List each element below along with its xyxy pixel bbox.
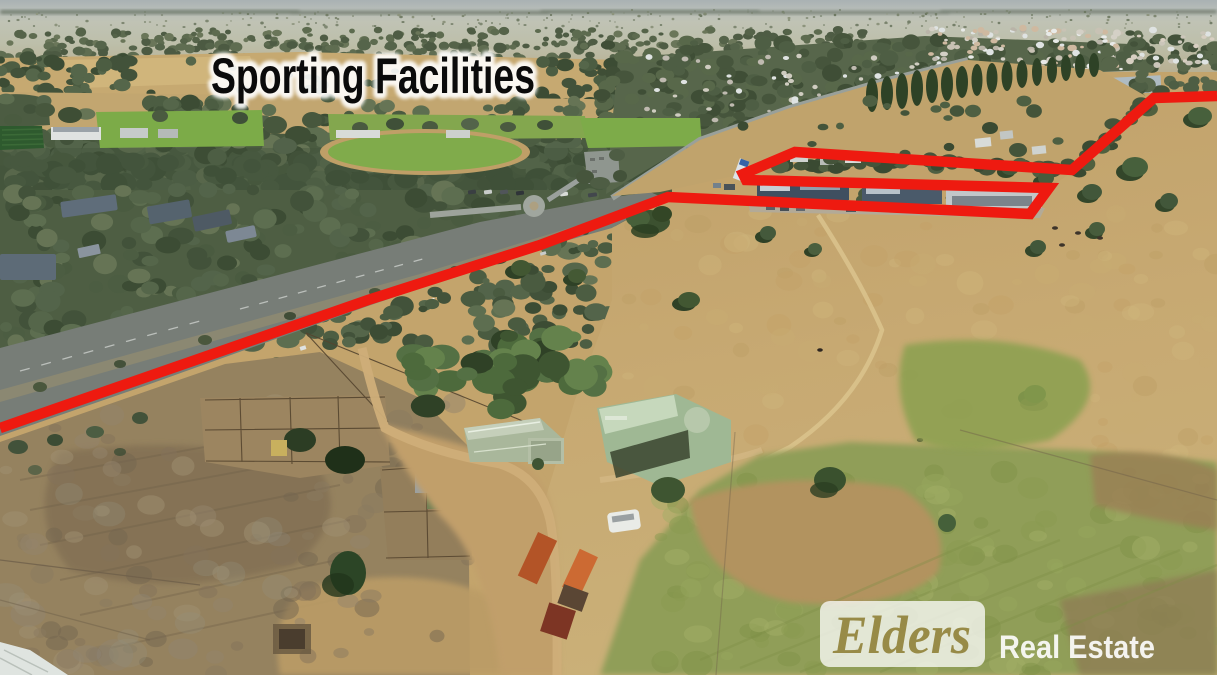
svg-text:Elders: Elders [832,605,971,665]
svg-text:Real Estate: Real Estate [999,629,1155,665]
svg-text:Sporting Facilities: Sporting Facilities [211,48,535,104]
